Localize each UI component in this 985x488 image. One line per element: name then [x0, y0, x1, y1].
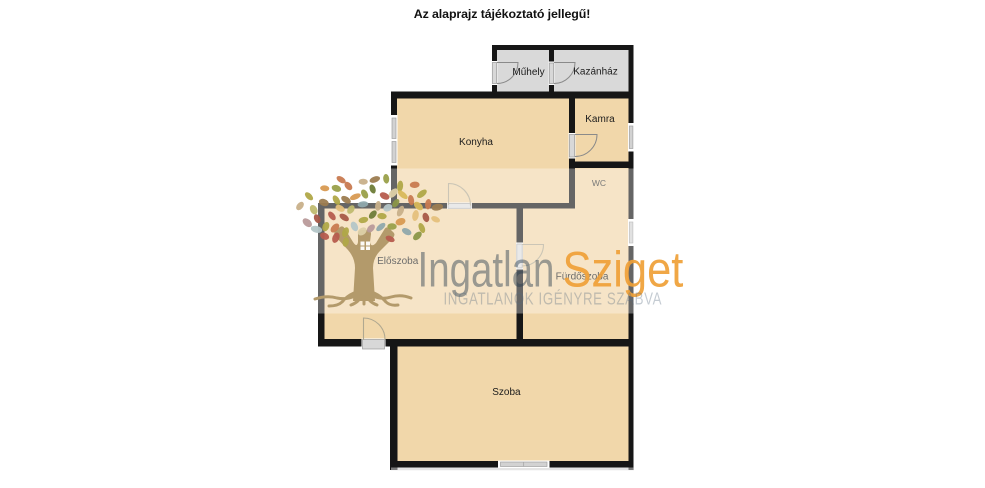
svg-text:Kamra: Kamra: [585, 114, 615, 125]
svg-text:Konyha: Konyha: [459, 137, 493, 148]
svg-text:Kazánház: Kazánház: [573, 67, 617, 78]
svg-text:Műhely: Műhely: [512, 67, 544, 78]
svg-text:Szoba: Szoba: [492, 387, 521, 398]
svg-text:Az alaprajz tájékoztató jelleg: Az alaprajz tájékoztató jellegű!: [414, 7, 591, 21]
svg-text:Sziget: Sziget: [563, 242, 684, 297]
svg-text:INGATLANOK IGÉNYRE SZABVA: INGATLANOK IGÉNYRE SZABVA: [444, 290, 663, 309]
